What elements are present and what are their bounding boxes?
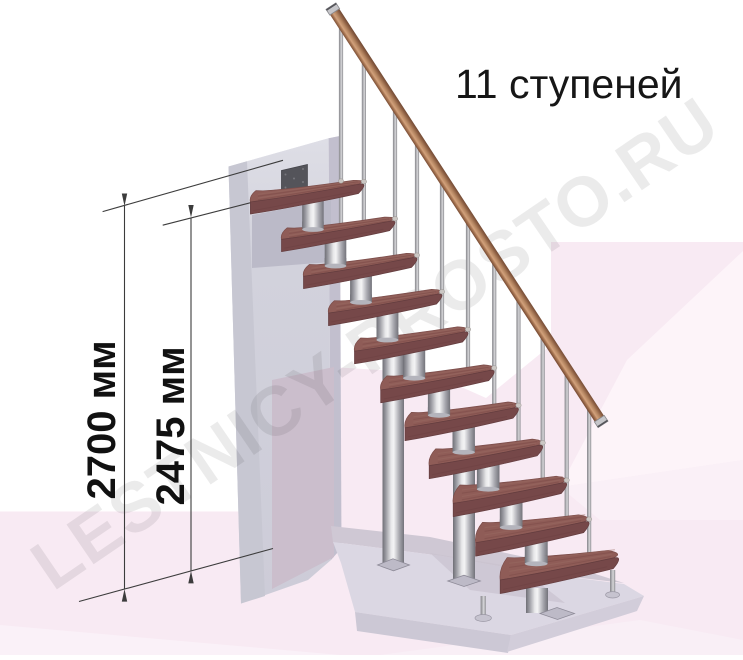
svg-text:2700 мм: 2700 мм [80,340,124,499]
svg-text:2475 мм: 2475 мм [149,346,193,505]
svg-text:11 ступеней: 11 ступеней [455,61,683,107]
